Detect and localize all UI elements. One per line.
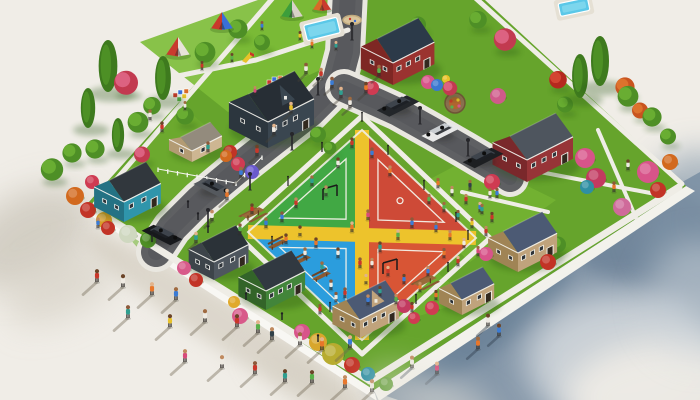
person-legs: [321, 76, 322, 79]
person-foot-shadow: [476, 256, 481, 258]
person-foot-shadow: [294, 208, 299, 210]
person-head: [239, 167, 243, 171]
person-legs: [387, 273, 388, 276]
canopy-highlight: [196, 43, 209, 56]
lamp-head: [290, 132, 294, 136]
person-body: [238, 226, 241, 231]
person-legs: [378, 73, 379, 76]
person-foot-shadow: [442, 258, 447, 260]
canopy-highlight: [495, 30, 509, 44]
person-head: [334, 292, 337, 295]
bush-highlight: [481, 248, 488, 255]
person-head: [448, 230, 451, 233]
person-legs: [627, 167, 628, 170]
person-legs: [239, 231, 240, 234]
person-foot-shadow: [434, 300, 439, 302]
person-head: [220, 355, 224, 359]
person-legs: [388, 273, 389, 276]
person-body: [364, 85, 368, 90]
person-legs: [295, 205, 296, 208]
person-legs: [332, 85, 333, 88]
bush-highlight: [179, 262, 186, 269]
person-head: [394, 294, 397, 297]
person-foot-shadow: [234, 327, 240, 329]
person-legs: [202, 67, 203, 70]
person-body: [299, 34, 302, 38]
person-body: [304, 66, 308, 71]
person-foot-shadow: [484, 236, 489, 238]
person-foot-shadow: [370, 158, 375, 160]
person-foot-shadow: [310, 48, 314, 50]
person-head: [450, 186, 453, 189]
person-body: [626, 162, 629, 167]
person-legs: [162, 129, 163, 132]
canopy-highlight: [311, 128, 321, 138]
person-head: [283, 369, 287, 373]
person-body: [490, 215, 493, 220]
person-head: [335, 41, 338, 44]
person-foot-shadow: [314, 248, 319, 250]
person-legs: [352, 145, 353, 148]
person-head: [488, 188, 491, 191]
person-foot-shadow: [409, 368, 415, 370]
person-foot-shadow: [394, 304, 399, 306]
fence-post-top: [415, 294, 417, 296]
person-legs: [437, 185, 438, 188]
person-foot-shadow: [462, 248, 467, 250]
person-body: [358, 260, 361, 265]
person-body: [255, 148, 259, 153]
person-legs: [320, 311, 321, 314]
bush-highlight: [542, 256, 550, 264]
person-body: [206, 144, 209, 149]
person-legs: [286, 241, 287, 244]
person-legs: [300, 233, 301, 236]
person-legs: [365, 281, 366, 284]
person-foot-shadow: [495, 198, 500, 200]
person-legs: [428, 273, 429, 276]
person-body: [370, 261, 373, 266]
person-foot-shadow: [120, 287, 126, 289]
person-legs: [265, 225, 266, 228]
person-body: [343, 290, 346, 295]
person-legs: [476, 345, 477, 349]
person-body: [298, 336, 302, 342]
person-legs: [390, 173, 391, 176]
neighborhood-illustration: Isometric 3D illustration of a friendly …: [0, 0, 700, 400]
person-foot-shadow: [402, 284, 407, 286]
canopy-highlight: [42, 160, 56, 174]
person-legs: [614, 189, 615, 192]
person-legs: [241, 175, 242, 178]
person-foot-shadow: [475, 349, 481, 351]
person-legs: [290, 110, 291, 113]
person-legs: [371, 155, 372, 158]
person-body: [488, 191, 491, 196]
person-head: [434, 222, 437, 225]
person-legs: [348, 344, 349, 348]
person-legs: [341, 95, 342, 98]
canopy-highlight: [177, 108, 188, 119]
person-foot-shadow: [94, 282, 100, 284]
bush-highlight: [399, 300, 406, 307]
person-head: [303, 247, 306, 250]
person-body: [303, 250, 306, 255]
bush-highlight: [103, 222, 110, 229]
bush-highlight: [230, 297, 236, 303]
person-body: [310, 178, 313, 183]
person-legs: [410, 364, 411, 368]
person-legs: [466, 201, 467, 204]
person-legs: [261, 27, 262, 30]
person-legs: [486, 233, 487, 236]
person-legs: [497, 195, 498, 198]
person-legs: [368, 302, 369, 305]
person-body: [427, 197, 430, 202]
fence-picket: [226, 180, 227, 185]
play-block: [182, 94, 187, 99]
person-head: [231, 53, 234, 56]
person-legs: [296, 205, 297, 208]
person-foot-shadow: [167, 327, 173, 329]
person-head: [329, 279, 332, 282]
person-head: [350, 221, 353, 224]
person-body: [486, 317, 490, 323]
canopy-highlight: [470, 12, 481, 23]
wheel: [382, 107, 386, 111]
person-body: [386, 269, 389, 274]
lamp-head: [466, 138, 470, 142]
fence-picket: [157, 168, 158, 173]
person-legs: [613, 189, 614, 192]
person-legs: [486, 322, 487, 326]
person-legs: [411, 309, 412, 312]
person-foot-shadow: [125, 318, 131, 320]
person-head: [255, 145, 259, 149]
person-legs: [311, 183, 312, 186]
person-head: [343, 287, 346, 290]
cypress-highlight: [157, 60, 166, 94]
person-body: [126, 309, 130, 315]
fence-picket: [216, 178, 217, 183]
canopy-highlight: [324, 142, 332, 150]
person-legs: [240, 231, 241, 234]
person-head: [121, 274, 125, 278]
person-foot-shadow: [343, 298, 348, 300]
person-head: [261, 21, 264, 24]
person-legs: [396, 301, 397, 304]
person-foot-shadow: [338, 98, 343, 100]
person-foot-shadow: [488, 198, 493, 200]
person-head: [336, 247, 339, 250]
person-legs: [207, 149, 208, 152]
person-legs: [380, 249, 381, 252]
person-body: [231, 56, 234, 60]
bush-highlight: [222, 151, 228, 157]
person-body: [289, 105, 293, 110]
person-body: [310, 374, 314, 380]
person-foot-shadow: [230, 62, 234, 64]
bollard-top: [151, 234, 153, 236]
person-legs: [435, 370, 436, 374]
person-legs: [257, 153, 258, 156]
person-foot-shadow: [496, 336, 502, 338]
person-head: [264, 217, 267, 220]
cypress-highlight: [101, 44, 111, 85]
person-head: [304, 63, 308, 67]
bush-highlight: [652, 184, 660, 192]
person-body: [350, 224, 353, 229]
person-head: [370, 258, 373, 261]
person-legs: [270, 336, 271, 340]
cypress-highlight: [82, 91, 90, 122]
person-foot-shadow: [334, 50, 338, 52]
person-head: [168, 314, 172, 318]
bush-highlight: [427, 302, 434, 309]
person-head: [330, 77, 334, 81]
person-body: [225, 192, 229, 197]
person-body: [434, 225, 437, 230]
person-legs: [227, 197, 228, 200]
person-legs: [298, 341, 299, 345]
person-foot-shadow: [334, 302, 339, 304]
person-body: [264, 220, 267, 225]
person-legs: [478, 345, 479, 349]
person-foot-shadow: [378, 252, 383, 254]
person-body: [480, 207, 483, 212]
fence-picket: [177, 171, 178, 176]
person-legs: [345, 384, 346, 388]
person-foot-shadow: [254, 156, 259, 158]
person-legs: [344, 295, 345, 298]
person-head: [310, 175, 313, 178]
person-foot-shadow: [464, 204, 469, 206]
person-legs: [203, 318, 204, 322]
person-body: [261, 24, 264, 28]
person-foot-shadow: [303, 258, 308, 260]
person-legs: [312, 183, 313, 186]
fence-picket: [261, 156, 262, 161]
wheel: [440, 126, 444, 130]
person-legs: [380, 293, 381, 296]
person-body: [324, 188, 327, 193]
bollard-top: [245, 292, 247, 294]
person-head: [378, 241, 381, 244]
person-foot-shadow: [336, 168, 341, 170]
person-body: [235, 318, 239, 324]
person-legs: [458, 263, 459, 266]
person-legs: [311, 45, 312, 48]
person-body: [183, 353, 187, 359]
person-head: [256, 320, 260, 324]
person-legs: [365, 90, 366, 93]
fence-picket: [187, 173, 188, 178]
person-legs: [97, 225, 98, 228]
person-legs: [274, 132, 275, 135]
person-legs: [161, 129, 162, 132]
person-foot-shadow: [250, 214, 255, 216]
person-legs: [345, 295, 346, 298]
person-foot-shadow: [269, 340, 275, 342]
person-body: [348, 100, 352, 105]
person-head: [388, 165, 391, 168]
toy: [354, 20, 356, 22]
person-legs: [255, 92, 256, 95]
person-body: [468, 183, 471, 188]
person-legs: [337, 255, 338, 258]
person-head: [497, 324, 501, 328]
person-foot-shadow: [320, 272, 325, 274]
person-body: [150, 286, 154, 292]
person-head: [289, 102, 293, 106]
person-foot-shadow: [388, 176, 393, 178]
person-foot-shadow: [347, 348, 353, 350]
person-legs: [419, 289, 420, 292]
person-body: [364, 277, 367, 282]
person-legs: [457, 217, 458, 220]
person-body: [370, 150, 373, 155]
person-body: [184, 104, 187, 108]
fountain-flower: [450, 105, 453, 108]
person-head: [203, 309, 207, 313]
fence-post-top: [423, 180, 425, 182]
bollard-top: [317, 334, 319, 336]
person-legs: [335, 299, 336, 302]
person-legs: [379, 293, 380, 296]
canopy-highlight: [255, 36, 265, 46]
person-body: [335, 44, 338, 48]
person-foot-shadow: [370, 268, 375, 270]
person-legs: [232, 59, 233, 62]
person-head: [343, 375, 347, 379]
fence-post-top: [361, 112, 363, 114]
person-head: [456, 256, 459, 259]
person-legs: [310, 379, 311, 383]
person-foot-shadow: [255, 333, 261, 335]
bollard-top: [197, 212, 199, 214]
canopy-highlight: [661, 130, 671, 140]
person-legs: [472, 225, 473, 228]
bush-highlight: [233, 158, 240, 165]
person-head: [298, 225, 301, 228]
person-legs: [285, 378, 286, 382]
person-legs: [326, 193, 327, 196]
person-legs: [435, 297, 436, 300]
canopy-highlight: [129, 113, 142, 126]
person-body: [174, 291, 178, 297]
person-legs: [237, 323, 238, 327]
person-legs: [438, 185, 439, 188]
person-legs: [477, 253, 478, 256]
bush-highlight: [433, 80, 439, 86]
person-head: [377, 65, 381, 69]
fence-post-top: [329, 302, 331, 304]
person-legs: [149, 117, 150, 120]
person-foot-shadow: [297, 345, 303, 347]
person-legs: [481, 211, 482, 214]
person-head: [174, 287, 178, 291]
person-head: [318, 304, 321, 307]
person-legs: [451, 193, 452, 196]
person-body: [320, 264, 323, 269]
person-legs: [497, 332, 498, 336]
person-legs: [220, 364, 221, 368]
person-body: [410, 359, 414, 365]
person-foot-shadow: [450, 196, 455, 198]
person-body: [410, 305, 413, 310]
person-legs: [205, 318, 206, 322]
person-head: [336, 157, 339, 160]
person-foot-shadow: [183, 110, 187, 112]
person-body: [318, 307, 321, 312]
person-head: [126, 305, 130, 309]
person-foot-shadow: [442, 212, 447, 214]
person-foot-shadow: [347, 108, 352, 110]
person-foot-shadow: [202, 322, 208, 324]
person-legs: [183, 358, 184, 362]
person-head: [194, 232, 198, 236]
person-head: [320, 261, 323, 264]
person-legs: [336, 47, 337, 50]
person-body: [330, 80, 334, 85]
bollard-top: [281, 312, 283, 314]
person-head: [160, 121, 163, 124]
person-head: [378, 286, 381, 289]
person-head: [464, 194, 467, 197]
canopy-highlight: [619, 87, 632, 100]
person-legs: [398, 237, 399, 240]
person-legs: [126, 314, 127, 318]
person-foot-shadow: [260, 30, 264, 32]
person-body: [464, 197, 467, 202]
person-head: [253, 361, 257, 365]
person-head: [427, 194, 430, 197]
person-body: [456, 259, 459, 264]
person-legs: [312, 45, 313, 48]
person-head: [280, 211, 283, 214]
person-head: [370, 147, 373, 150]
person-foot-shadow: [238, 178, 243, 180]
bush-highlight: [82, 204, 90, 212]
canopy-highlight: [135, 148, 145, 158]
person-body: [495, 191, 498, 196]
person-foot-shadow: [490, 222, 495, 224]
person-legs: [379, 73, 380, 76]
person-legs: [150, 291, 151, 295]
person-legs: [258, 329, 259, 333]
person-legs: [212, 218, 213, 221]
person-head: [626, 159, 629, 162]
person-legs: [435, 229, 436, 232]
person-legs: [412, 309, 413, 312]
person-legs: [320, 346, 321, 350]
person-legs: [397, 237, 398, 240]
person-legs: [351, 145, 352, 148]
person-legs: [95, 278, 96, 282]
person-body: [470, 221, 473, 226]
person-legs: [444, 209, 445, 212]
person-body: [476, 249, 479, 254]
person-legs: [256, 329, 257, 333]
person-head: [299, 31, 302, 34]
person-head: [486, 314, 490, 318]
wheel: [426, 133, 430, 137]
person-legs: [240, 175, 241, 178]
person-legs: [252, 211, 253, 214]
bush-highlight: [486, 176, 494, 184]
person-head: [410, 302, 413, 305]
person-legs: [195, 240, 196, 243]
